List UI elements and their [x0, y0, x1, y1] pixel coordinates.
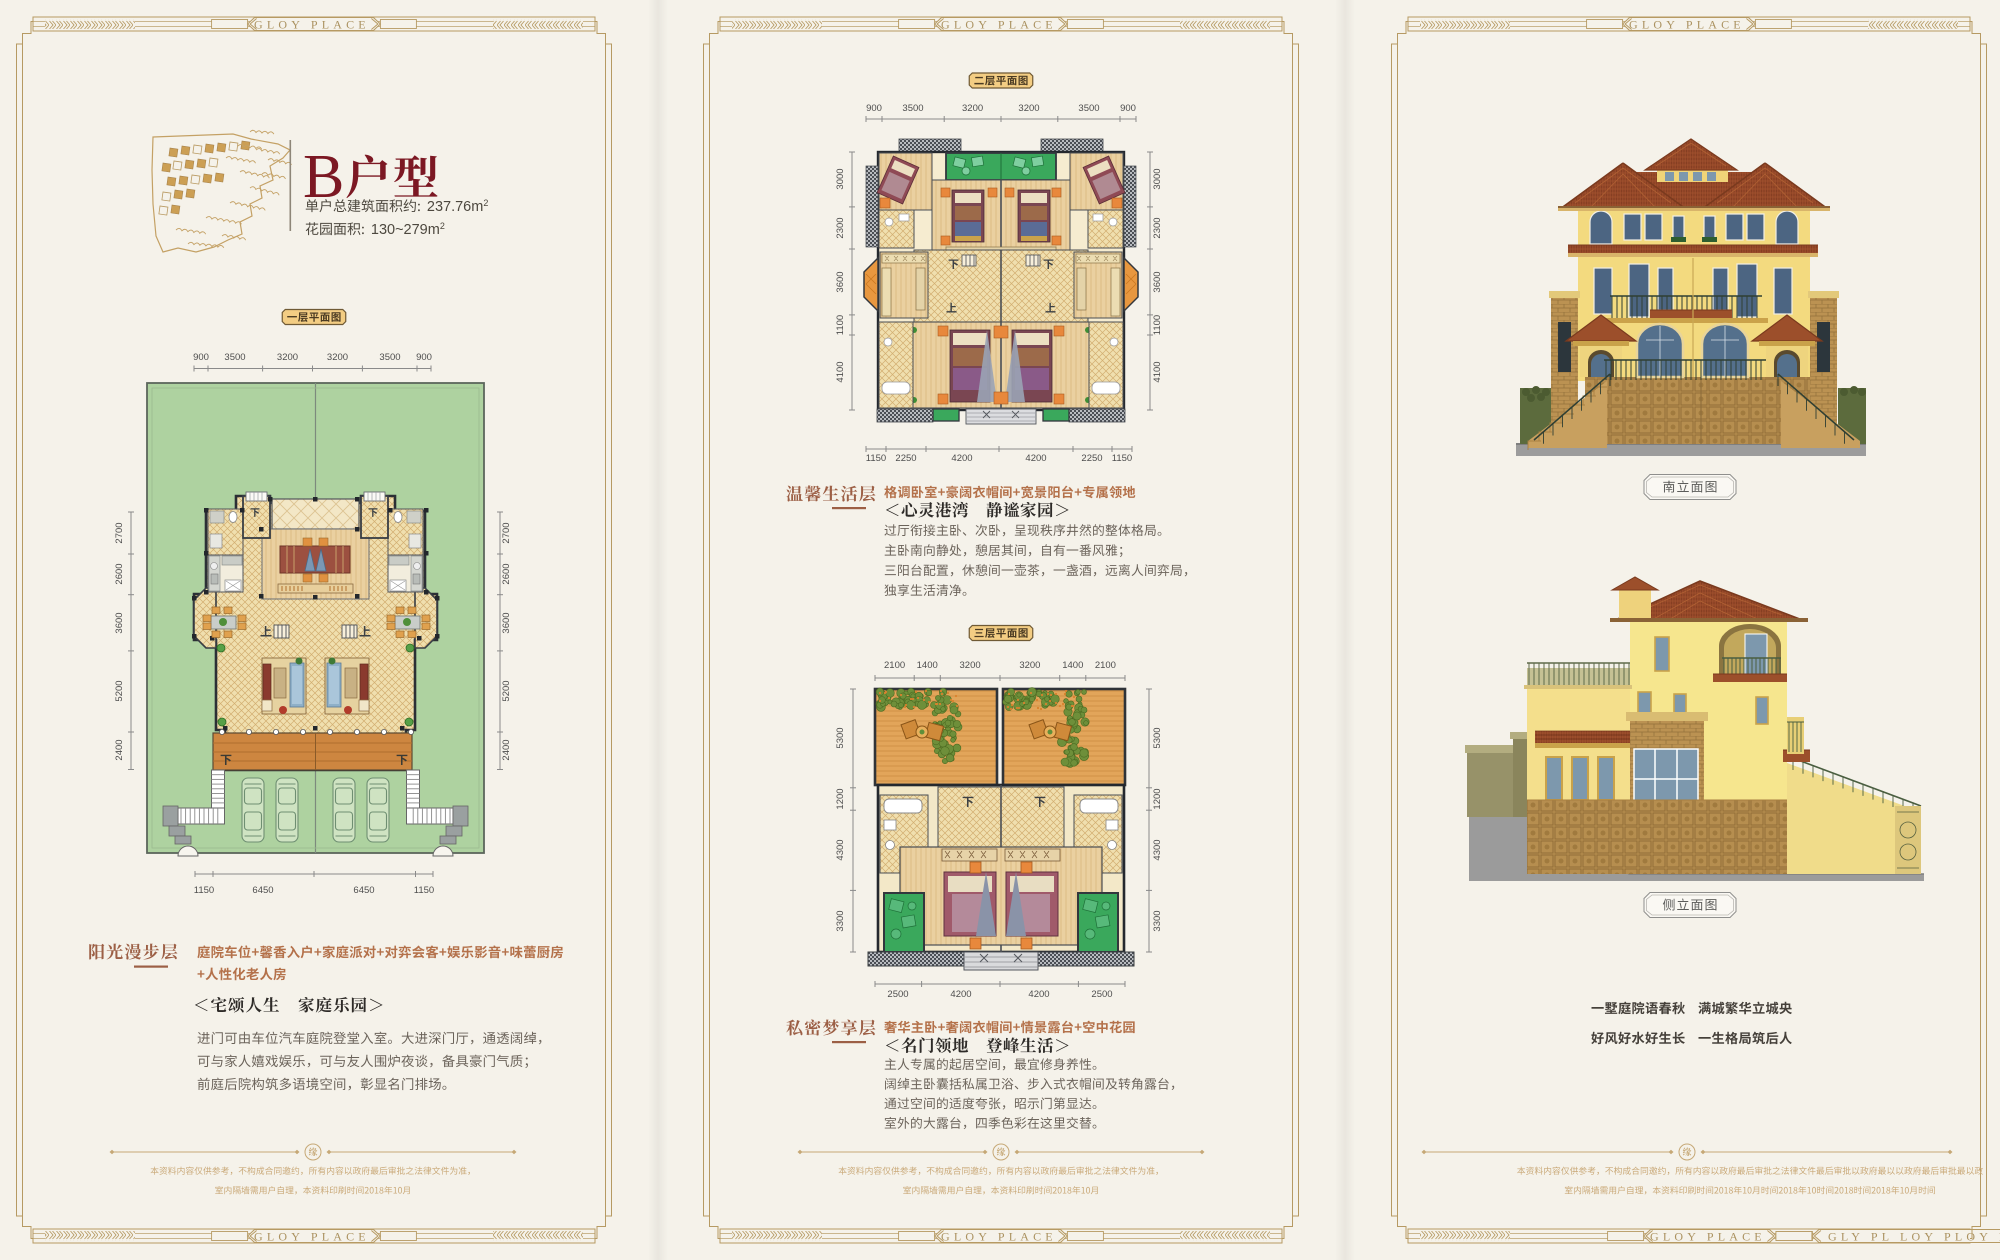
svg-text:2700: 2700 [114, 522, 125, 543]
svg-text:GLY PL LOY PLOY P: GLY PL LOY PLOY P [1828, 1230, 2000, 1244]
svg-text:2400: 2400 [114, 739, 125, 760]
svg-text:3600: 3600 [114, 612, 125, 633]
svg-text:2400: 2400 [501, 739, 512, 760]
svg-text:3200: 3200 [277, 352, 298, 363]
svg-text:3200: 3200 [962, 103, 983, 114]
svg-text:900: 900 [193, 352, 209, 363]
svg-text:2500: 2500 [1091, 989, 1112, 1000]
svg-text:3000: 3000 [1152, 168, 1163, 189]
svg-text:3200: 3200 [960, 660, 981, 671]
svg-text:1400: 1400 [1062, 660, 1083, 671]
svg-text:1150: 1150 [866, 453, 886, 464]
svg-text:2100: 2100 [1095, 660, 1116, 671]
svg-text:1150: 1150 [1112, 453, 1132, 464]
svg-text:3000: 3000 [835, 168, 846, 189]
svg-text:2500: 2500 [887, 989, 908, 1000]
svg-text:3200: 3200 [1018, 103, 1039, 114]
svg-text:2100: 2100 [884, 660, 905, 671]
svg-text:4200: 4200 [1028, 989, 1049, 1000]
svg-text:GLOY PLACE: GLOY PLACE [941, 1230, 1057, 1244]
svg-text:1100: 1100 [835, 315, 846, 335]
svg-text:2300: 2300 [1152, 217, 1163, 238]
svg-text:4100: 4100 [1152, 361, 1163, 382]
svg-text:4200: 4200 [950, 989, 971, 1000]
svg-text:4300: 4300 [835, 839, 846, 860]
svg-text:2700: 2700 [501, 522, 512, 543]
svg-text:GLOY PLACE: GLOY PLACE [1650, 1230, 1766, 1244]
svg-text:4200: 4200 [951, 453, 972, 464]
svg-text:4200: 4200 [1025, 453, 1046, 464]
svg-text:2300: 2300 [835, 217, 846, 238]
svg-text:5200: 5200 [501, 680, 512, 701]
svg-text:6450: 6450 [353, 885, 374, 896]
svg-text:3500: 3500 [379, 352, 400, 363]
svg-text:3600: 3600 [1152, 271, 1163, 292]
svg-text:900: 900 [416, 352, 432, 363]
svg-text:1200: 1200 [1152, 788, 1163, 809]
svg-text:3300: 3300 [835, 910, 846, 931]
svg-text:4100: 4100 [835, 361, 846, 382]
svg-text:3500: 3500 [1078, 103, 1099, 114]
svg-text:5200: 5200 [114, 680, 125, 701]
svg-text:3500: 3500 [224, 352, 245, 363]
svg-text:2250: 2250 [895, 453, 916, 464]
svg-text:5300: 5300 [835, 727, 846, 748]
svg-text:900: 900 [866, 103, 882, 114]
svg-text:1150: 1150 [194, 885, 214, 896]
svg-text:1100: 1100 [1152, 315, 1163, 335]
svg-text:237.76m2: 237.76m2 [427, 198, 488, 215]
svg-text:5300: 5300 [1152, 727, 1163, 748]
svg-text:3600: 3600 [501, 612, 512, 633]
svg-text:4300: 4300 [1152, 839, 1163, 860]
svg-text:130~279m2: 130~279m2 [371, 221, 445, 238]
svg-text:GLOY PLACE: GLOY PLACE [254, 18, 370, 32]
svg-text:2600: 2600 [501, 563, 512, 584]
svg-text:3200: 3200 [1019, 660, 1040, 671]
svg-text:3200: 3200 [327, 352, 348, 363]
svg-text:GLOY PLACE: GLOY PLACE [941, 18, 1057, 32]
svg-text:3300: 3300 [1152, 910, 1163, 931]
svg-text:2250: 2250 [1081, 453, 1102, 464]
svg-text:3600: 3600 [835, 271, 846, 292]
svg-text:1200: 1200 [835, 788, 846, 809]
svg-text:1150: 1150 [414, 885, 434, 896]
svg-text:6450: 6450 [252, 885, 273, 896]
svg-text:GLOY PLACE: GLOY PLACE [254, 1230, 370, 1244]
svg-text:3500: 3500 [902, 103, 923, 114]
svg-text:900: 900 [1120, 103, 1136, 114]
svg-text:1400: 1400 [917, 660, 938, 671]
svg-text:GLOY PLACE: GLOY PLACE [1629, 18, 1745, 32]
svg-text:2600: 2600 [114, 563, 125, 584]
